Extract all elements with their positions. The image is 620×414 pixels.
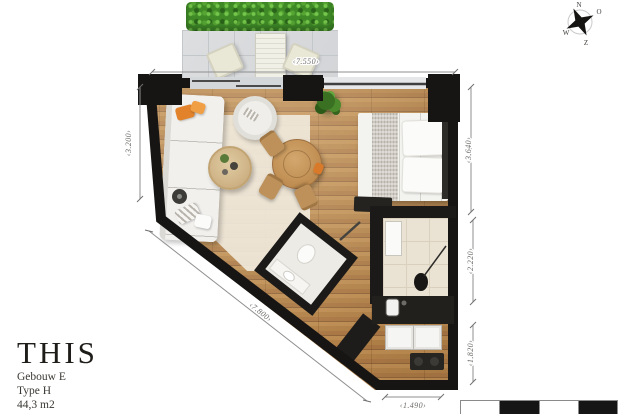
bed-runner-blanket: [372, 113, 398, 201]
stool: [414, 357, 423, 366]
scale-segment: [540, 401, 579, 414]
title-block: THIS Gebouw E Type H 44,3 m2: [17, 336, 98, 412]
potted-plant: [317, 92, 335, 110]
headboard: [442, 115, 449, 199]
bed-bench: [354, 196, 393, 212]
compass-ring: [568, 10, 592, 34]
bed-pillow: [401, 156, 444, 193]
dimension-right-middle: ‹2.220›: [466, 217, 476, 305]
compass-north: N: [576, 1, 581, 9]
hedge-plants: [186, 2, 334, 31]
armchair-pillow: [243, 107, 260, 122]
unit-type: Type H: [17, 384, 98, 398]
bed-pillow: [401, 119, 444, 156]
floor-lamp: [172, 189, 187, 204]
scale-segment: [500, 401, 539, 414]
table-plant: [220, 154, 229, 163]
coffee-table: [208, 146, 252, 190]
dimension-right-lower: ‹1.820›: [466, 322, 476, 385]
compass-south: Z: [584, 39, 588, 47]
floorplan-page: ‹7.550› ‹3.200› ‹3.640› ‹2.220›: [0, 0, 620, 414]
building-name: Gebouw E: [17, 370, 98, 384]
terrace-table: [255, 33, 286, 79]
compass-east: O: [596, 8, 601, 16]
table-decor: [230, 162, 238, 170]
table-decor: [222, 169, 228, 175]
compass-west: W: [563, 29, 570, 37]
dimension-bottom: ‹1.490›: [382, 394, 444, 410]
bathroom-door: [385, 221, 402, 256]
project-brand: THIS: [17, 336, 98, 370]
scale-segment: [461, 401, 500, 414]
kitchen-appliance: [413, 325, 442, 350]
unit-area: 44,3 m2: [17, 398, 98, 412]
compass-star-icon: [560, 2, 600, 42]
table-grain: [283, 150, 311, 178]
compass: N O W Z: [560, 1, 602, 47]
kitchen-appliance: [385, 325, 414, 350]
scale-bar: [460, 400, 618, 414]
dimension-label: ‹3.200›: [124, 130, 133, 156]
dimension-label: ‹1.820›: [466, 340, 475, 366]
dimension-label: ‹1.490›: [400, 401, 426, 410]
dimension-right-upper: ‹3.640›: [464, 84, 474, 215]
dimension-label: ‹2.220›: [466, 248, 475, 274]
stool: [430, 357, 439, 366]
dimension-label: ‹3.640›: [464, 137, 473, 163]
scale-segment: [579, 401, 617, 414]
bar-stools: [410, 353, 444, 370]
dimension-left: ‹3.200›: [124, 84, 143, 202]
